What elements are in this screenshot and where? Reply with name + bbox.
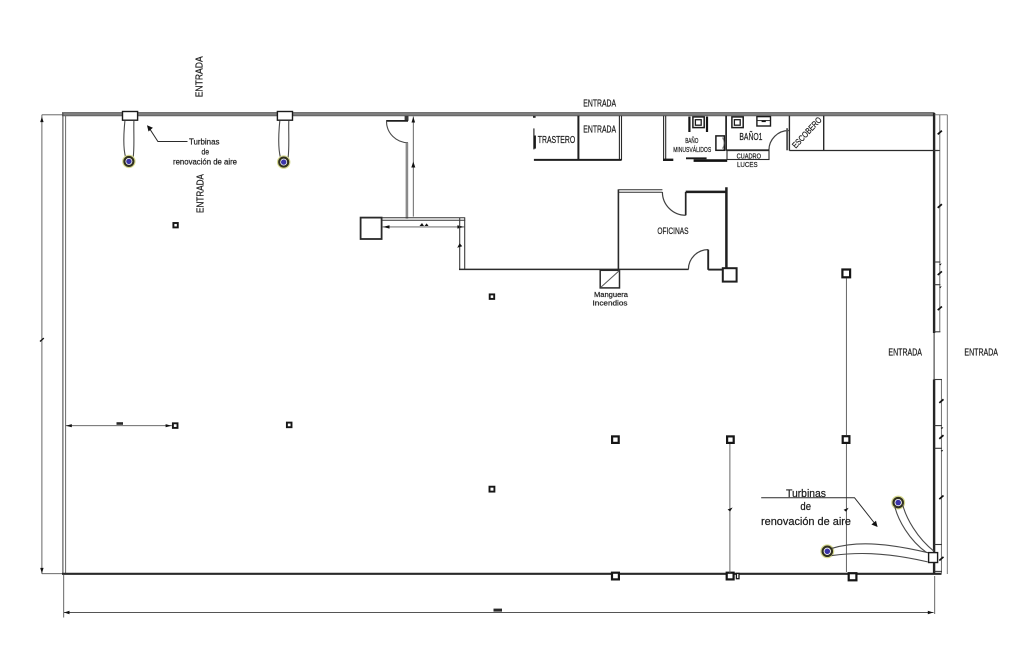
svg-text:renovación de aire: renovación de aire — [761, 516, 851, 528]
svg-text:MINUSVÁLIDOS: MINUSVÁLIDOS — [673, 145, 711, 154]
svg-text:ENTRADA: ENTRADA — [583, 98, 616, 109]
svg-text:BAÑO: BAÑO — [685, 136, 698, 145]
svg-text:TRASTERO: TRASTERO — [538, 135, 576, 146]
svg-text:CUADRO: CUADRO — [737, 151, 761, 160]
svg-text:de: de — [800, 501, 811, 513]
svg-text:ENTRADA: ENTRADA — [583, 124, 616, 135]
svg-text:ENTRADA: ENTRADA — [888, 348, 922, 359]
svg-text:Incendios: Incendios — [593, 299, 628, 308]
svg-text:ENTRADA: ENTRADA — [964, 348, 998, 359]
svg-text:Turbinas: Turbinas — [189, 137, 220, 146]
svg-text:LUCES: LUCES — [737, 160, 758, 169]
svg-text:ENTRADA: ENTRADA — [195, 56, 206, 97]
svg-text:de: de — [202, 148, 210, 157]
svg-text:renovación de aire: renovación de aire — [173, 158, 237, 167]
svg-text:ENTRADA: ENTRADA — [196, 174, 207, 213]
svg-text:OFICINAS: OFICINAS — [657, 226, 688, 236]
svg-text:BAÑO1: BAÑO1 — [739, 132, 762, 143]
